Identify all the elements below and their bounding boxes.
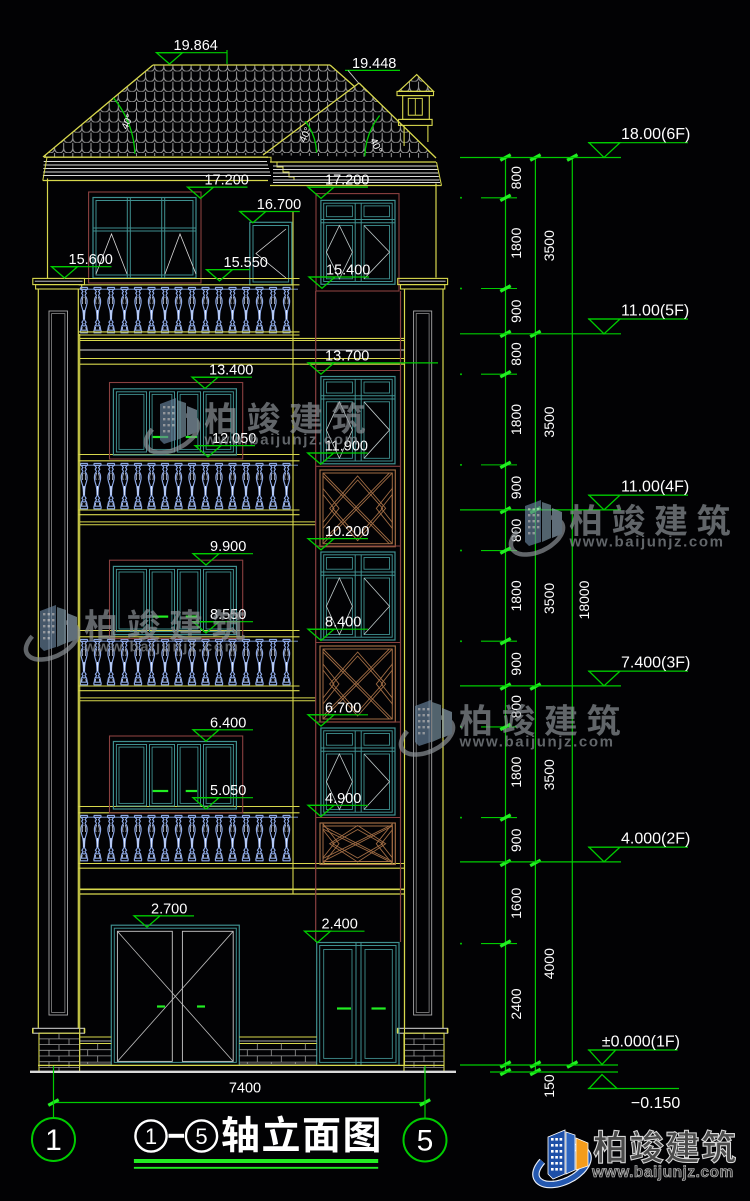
svg-text:900: 900 bbox=[508, 476, 524, 500]
svg-text:16.700: 16.700 bbox=[257, 197, 301, 213]
svg-text:−0.150: −0.150 bbox=[631, 1095, 680, 1112]
svg-text:17.200: 17.200 bbox=[205, 173, 249, 189]
svg-text:±0.000(1F): ±0.000(1F) bbox=[602, 1034, 680, 1051]
svg-text:1800: 1800 bbox=[508, 756, 524, 787]
svg-text:3500: 3500 bbox=[541, 583, 557, 614]
svg-text:11.00(4F): 11.00(4F) bbox=[621, 478, 689, 495]
svg-text:15.550: 15.550 bbox=[224, 255, 268, 271]
svg-text:17.200: 17.200 bbox=[325, 173, 369, 189]
svg-text:1800: 1800 bbox=[508, 227, 524, 258]
svg-text:1600: 1600 bbox=[508, 888, 524, 919]
svg-text:7.400(3F): 7.400(3F) bbox=[621, 654, 690, 671]
svg-text:10.200: 10.200 bbox=[325, 524, 369, 540]
svg-text:2400: 2400 bbox=[508, 988, 524, 1019]
svg-text:11.00(5F): 11.00(5F) bbox=[621, 302, 689, 319]
svg-text:8.400: 8.400 bbox=[325, 615, 361, 631]
svg-text:19.448: 19.448 bbox=[352, 56, 396, 72]
svg-text:13.400: 13.400 bbox=[209, 363, 253, 379]
svg-text:13.700: 13.700 bbox=[325, 348, 369, 364]
svg-text:1800: 1800 bbox=[508, 580, 524, 611]
svg-text:3500: 3500 bbox=[541, 230, 557, 261]
svg-text:4.900: 4.900 bbox=[325, 791, 361, 807]
svg-text:900: 900 bbox=[508, 652, 524, 676]
svg-text:3500: 3500 bbox=[541, 406, 557, 437]
svg-text:900: 900 bbox=[508, 828, 524, 852]
svg-text:800: 800 bbox=[508, 342, 524, 366]
svg-text:7400: 7400 bbox=[229, 1081, 261, 1097]
svg-text:15.600: 15.600 bbox=[69, 252, 113, 268]
svg-text:2.400: 2.400 bbox=[322, 917, 358, 933]
svg-text:9.900: 9.900 bbox=[210, 539, 246, 555]
svg-text:5.050: 5.050 bbox=[210, 783, 246, 799]
svg-text:18.00(6F): 18.00(6F) bbox=[621, 126, 690, 143]
svg-text:4.000(2F): 4.000(2F) bbox=[621, 830, 690, 847]
svg-text:15.400: 15.400 bbox=[326, 263, 370, 279]
svg-text:3500: 3500 bbox=[541, 759, 557, 790]
svg-text:5: 5 bbox=[195, 1124, 207, 1149]
svg-text:2.700: 2.700 bbox=[151, 901, 187, 917]
svg-text:1: 1 bbox=[45, 1124, 62, 1157]
svg-text:19.864: 19.864 bbox=[174, 38, 218, 54]
svg-text:www.baijunjz.com: www.baijunjz.com bbox=[591, 1164, 734, 1181]
svg-text:6.400: 6.400 bbox=[210, 715, 246, 731]
svg-text:18000: 18000 bbox=[576, 580, 592, 619]
svg-text:5: 5 bbox=[417, 1125, 434, 1158]
svg-text:150: 150 bbox=[541, 1074, 557, 1098]
svg-text:1: 1 bbox=[145, 1124, 157, 1149]
svg-text:1800: 1800 bbox=[508, 404, 524, 435]
svg-text:6.700: 6.700 bbox=[325, 700, 361, 716]
svg-text:900: 900 bbox=[508, 299, 524, 323]
svg-text:4000: 4000 bbox=[541, 948, 557, 979]
svg-text:800: 800 bbox=[508, 166, 524, 190]
